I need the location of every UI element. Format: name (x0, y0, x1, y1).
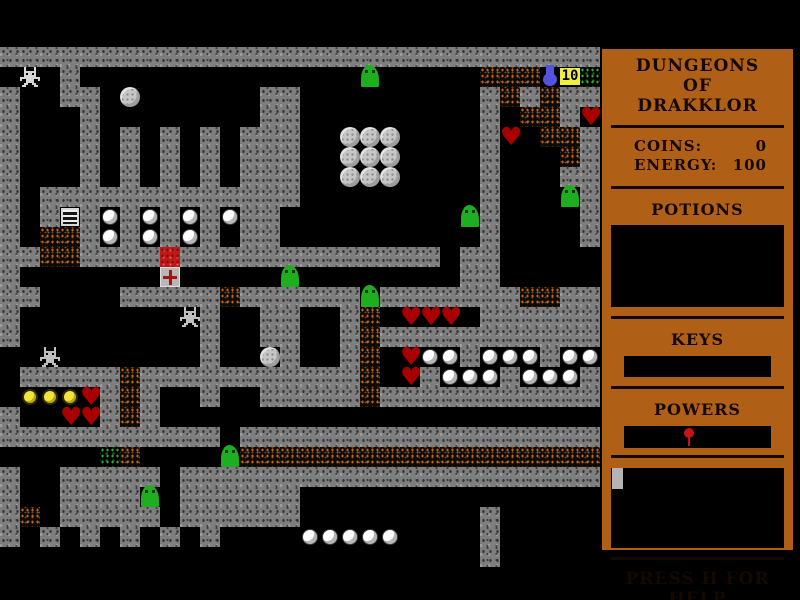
wall-tile (100, 47, 120, 67)
wall-tile (200, 207, 220, 227)
wall-tile (240, 507, 260, 527)
rubble-tile (460, 447, 480, 467)
wall-tile (180, 507, 200, 527)
slime-creature (461, 205, 479, 227)
boulder (260, 347, 280, 367)
keys-label: KEYS (602, 330, 793, 349)
wall-tile (100, 467, 120, 487)
rubble-tile (360, 327, 380, 347)
pearl (502, 349, 518, 365)
rubble-tile (500, 447, 520, 467)
wall-tile (80, 487, 100, 507)
wall-tile (580, 187, 600, 207)
rubble-tile (580, 447, 600, 467)
wall-tile (240, 487, 260, 507)
wall-tile (160, 367, 180, 387)
wall-tile (220, 487, 240, 507)
rubble-tile (540, 127, 560, 147)
wall-tile (400, 467, 420, 487)
wall-tile (20, 427, 40, 447)
wall-tile (160, 207, 180, 227)
divider (611, 455, 784, 458)
wall-tile (480, 127, 500, 147)
wall-tile (0, 307, 20, 327)
rubble-tile (320, 447, 340, 467)
divider (611, 125, 784, 128)
wall-tile (560, 107, 580, 127)
wall-tile (340, 47, 360, 67)
wall-tile (440, 327, 460, 347)
wall-tile (240, 167, 260, 187)
wall-tile (280, 347, 300, 367)
wall-tile (200, 307, 220, 327)
pearl (182, 209, 198, 225)
wall-tile (100, 387, 120, 407)
pearl (422, 349, 438, 365)
wall-tile (340, 467, 360, 487)
pearl (222, 209, 238, 225)
wall-tile (320, 467, 340, 487)
wall-tile (80, 187, 100, 207)
wall-tile (140, 467, 160, 487)
wall-tile (0, 247, 20, 267)
wall-tile (200, 387, 220, 407)
rubble-tile (40, 247, 60, 267)
wall-tile (420, 467, 440, 487)
wall-tile (80, 507, 100, 527)
wall-tile (540, 387, 560, 407)
wall-tile (180, 367, 200, 387)
game-title-line: DRAKKLOR (602, 96, 793, 116)
pearl (182, 229, 198, 245)
wall-tile (580, 387, 600, 407)
potions-label: POTIONS (602, 200, 793, 219)
wall-tile (260, 367, 280, 387)
wall-tile (260, 307, 280, 327)
help-text: PRESS H FOR HELP (602, 569, 793, 600)
wall-tile (0, 507, 20, 527)
wall-tile (20, 287, 40, 307)
wall-tile (60, 87, 80, 107)
heart: ♥ (60, 407, 80, 427)
wall-tile (260, 87, 280, 107)
wall-tile (260, 207, 280, 227)
wall-tile (260, 167, 280, 187)
wall-tile (140, 287, 160, 307)
statue-creature (40, 347, 60, 367)
wall-tile (300, 287, 320, 307)
gold-orb (22, 389, 38, 405)
wall-tile (100, 247, 120, 267)
wall-tile (500, 467, 520, 487)
wall-tile (400, 47, 420, 67)
wall-tile (0, 427, 20, 447)
wall-tile (60, 187, 80, 207)
wall-tile (480, 287, 500, 307)
wall-tile (220, 367, 240, 387)
wall-tile (420, 387, 440, 407)
wall-tile (480, 507, 500, 527)
wall-tile (580, 147, 600, 167)
wall-tile (540, 307, 560, 327)
wall-tile (240, 147, 260, 167)
wall-tile (260, 147, 280, 167)
rubble-tile (360, 347, 380, 367)
heart: ♥ (420, 307, 440, 327)
heart: ♥ (400, 367, 420, 387)
wall-tile (60, 467, 80, 487)
wall-tile (40, 47, 60, 67)
wall-tile (140, 407, 160, 427)
wall-tile (260, 487, 280, 507)
message-cursor-block (612, 468, 623, 489)
wall-tile (460, 247, 480, 267)
wall-tile (220, 467, 240, 487)
wall-tile (480, 547, 500, 567)
wall-tile (0, 527, 20, 547)
wall-tile (440, 47, 460, 67)
boulder (340, 147, 360, 167)
wall-tile (480, 167, 500, 187)
wall-tile (260, 247, 280, 267)
wall-tile (80, 467, 100, 487)
pearl (302, 529, 318, 545)
wall-tile (500, 307, 520, 327)
wall-tile (60, 507, 80, 527)
wall-tile (520, 307, 540, 327)
heart: ♥ (500, 127, 520, 147)
wall-tile (160, 187, 180, 207)
player-pixel-sprite (20, 67, 22, 69)
pearl (102, 229, 118, 245)
wall-tile (20, 247, 40, 267)
wall-tile (540, 47, 560, 67)
rubble-tile (280, 447, 300, 467)
rubble-tile (20, 507, 40, 527)
wall-tile (0, 227, 20, 247)
pearl (142, 209, 158, 225)
wall-tile (500, 327, 520, 347)
wall-tile (200, 367, 220, 387)
wall-tile (120, 247, 140, 267)
wall-tile (100, 407, 120, 427)
wall-tile (120, 287, 140, 307)
wall-tile (480, 207, 500, 227)
wall-tile (140, 47, 160, 67)
wall-tile (580, 307, 600, 327)
rubble-tile (540, 87, 560, 107)
wall-tile (80, 207, 100, 227)
wall-tile (380, 327, 400, 347)
wall-tile (380, 427, 400, 447)
wall-tile (460, 287, 480, 307)
rubble-tile (240, 447, 260, 467)
pearl (342, 529, 358, 545)
game-title: DUNGEONS OF DRAKKLOR (602, 49, 793, 116)
wall-tile (480, 87, 500, 107)
statue-pixel-sprite (180, 307, 182, 309)
statue-creature (180, 307, 200, 327)
wall-tile (180, 47, 200, 67)
wall-tile (200, 487, 220, 507)
energy-row: ENERGY: 100 (602, 156, 793, 175)
moss-tile (580, 67, 600, 87)
boulder (340, 127, 360, 147)
wall-tile (0, 87, 20, 107)
wall-tile (480, 187, 500, 207)
wall-tile (100, 187, 120, 207)
wall-tile (380, 287, 400, 307)
wall-tile (160, 47, 180, 67)
wall-tile (500, 287, 520, 307)
rubble-tile (520, 107, 540, 127)
wall-tile (460, 427, 480, 447)
wall-tile (220, 507, 240, 527)
wall-tile (520, 47, 540, 67)
crate (160, 247, 180, 267)
pearl (562, 349, 578, 365)
wall-tile (560, 87, 580, 107)
wall-tile (480, 267, 500, 287)
wall-tile (160, 167, 180, 187)
wall-tile (240, 127, 260, 147)
powers-label: POWERS (602, 400, 793, 419)
pearl (482, 349, 498, 365)
coins-row: COINS: 0 (602, 137, 793, 156)
wall-tile (300, 247, 320, 267)
wall-tile (580, 47, 600, 67)
wall-tile (140, 187, 160, 207)
wall-tile (40, 427, 60, 447)
rubble-tile (120, 367, 140, 387)
wall-tile (300, 47, 320, 67)
wall-tile (540, 327, 560, 347)
wall-tile (200, 507, 220, 527)
game-title-line: OF (602, 76, 793, 96)
wall-tile (0, 147, 20, 167)
wall-tile (280, 147, 300, 167)
wall-tile (580, 167, 600, 187)
wall-tile (80, 427, 100, 447)
wall-tile (220, 247, 240, 267)
wall-tile (220, 187, 240, 207)
slime-creature (561, 185, 579, 207)
wall-tile (140, 427, 160, 447)
wall-tile (0, 167, 20, 187)
wall-tile (120, 127, 140, 147)
pearl (482, 369, 498, 385)
wall-tile (120, 47, 140, 67)
coins-label: COINS: (634, 137, 702, 156)
energy-label: ENERGY: (634, 156, 717, 175)
wall-tile (420, 367, 440, 387)
wall-tile (260, 427, 280, 447)
wall-tile (400, 387, 420, 407)
wall-tile (140, 247, 160, 267)
game-screen: 10♥♥♥♥♥♥♥♥♥♥ DUNGEONS OF DRAKKLOR COINS:… (0, 0, 800, 600)
wall-tile (240, 207, 260, 227)
rubble-tile (220, 287, 240, 307)
rubble-tile (420, 447, 440, 467)
wall-tile (520, 467, 540, 487)
rubble-tile (360, 307, 380, 327)
rubble-tile (120, 447, 140, 467)
game-title-line: DUNGEONS (602, 56, 793, 76)
wall-tile (180, 187, 200, 207)
wall-tile (440, 387, 460, 407)
wall-tile (340, 287, 360, 307)
wall-tile (540, 347, 560, 367)
wall-tile (0, 107, 20, 127)
heart: ♥ (400, 307, 420, 327)
wall-tile (120, 467, 140, 487)
player-sprite (20, 67, 40, 87)
wall-tile (480, 387, 500, 407)
wall-tile (340, 387, 360, 407)
wall-tile (520, 387, 540, 407)
wall-tile (380, 467, 400, 487)
wall-tile (240, 187, 260, 207)
wall-tile (120, 527, 140, 547)
wall-tile (120, 487, 140, 507)
rubble-tile (500, 87, 520, 107)
wall-tile (140, 387, 160, 407)
wall-tile (200, 247, 220, 267)
wall-tile (280, 87, 300, 107)
wall-tile (460, 47, 480, 67)
wall-tile (0, 267, 20, 287)
wall-tile (140, 507, 160, 527)
wall-tile (320, 427, 340, 447)
rubble-tile (520, 447, 540, 467)
red-power-pin-icon (684, 428, 694, 438)
wall-tile (380, 47, 400, 67)
wall-tile (200, 187, 220, 207)
wall-tile (60, 67, 80, 87)
divider (611, 186, 784, 189)
wall-tile (520, 87, 540, 107)
statue-pixel-sprite (40, 347, 42, 349)
wall-tile (200, 227, 220, 247)
wall-tile (160, 127, 180, 147)
heart: ♥ (440, 307, 460, 327)
wall-tile (80, 247, 100, 267)
wall-tile (480, 147, 500, 167)
wall-tile (340, 307, 360, 327)
wall-tile (20, 47, 40, 67)
wall-tile (100, 507, 120, 527)
boulder (360, 127, 380, 147)
wall-tile (340, 327, 360, 347)
wall-tile (360, 427, 380, 447)
slime-creature (361, 285, 379, 307)
wall-tile (360, 247, 380, 267)
wall-tile (40, 367, 60, 387)
wall-tile (200, 147, 220, 167)
coins-value: 0 (756, 137, 767, 156)
wall-tile (120, 147, 140, 167)
wall-tile (480, 527, 500, 547)
wall-tile (320, 367, 340, 387)
wall-tile (460, 347, 480, 367)
wall-tile (300, 367, 320, 387)
wall-tile (480, 247, 500, 267)
wall-tile (320, 387, 340, 407)
wall-tile (40, 187, 60, 207)
wall-tile (260, 107, 280, 127)
wall-tile (460, 267, 480, 287)
message-box (611, 468, 784, 548)
wall-tile (80, 87, 100, 107)
wall-tile (460, 387, 480, 407)
slime-creature (281, 265, 299, 287)
wall-tile (520, 327, 540, 347)
wall-tile (260, 187, 280, 207)
wall-tile (280, 507, 300, 527)
rubble-tile (360, 447, 380, 467)
wall-tile (560, 287, 580, 307)
wall-tile (0, 287, 20, 307)
heart: ♥ (580, 107, 600, 127)
wall-tile (180, 427, 200, 447)
divider (611, 316, 784, 319)
wall-tile (240, 427, 260, 447)
wall-tile (480, 327, 500, 347)
count-badge: 10 (560, 68, 580, 85)
wall-tile (140, 367, 160, 387)
slime-creature (221, 445, 239, 467)
potions-inventory-box (611, 225, 784, 307)
wall-tile (220, 47, 240, 67)
wall-tile (420, 327, 440, 347)
wall-tile (80, 107, 100, 127)
medkit-crate (160, 267, 180, 287)
pearl (522, 369, 538, 385)
hud-sidebar: DUNGEONS OF DRAKKLOR COINS: 0 ENERGY: 10… (600, 47, 795, 552)
wall-tile (540, 467, 560, 487)
rubble-tile (560, 447, 580, 467)
rubble-tile (380, 447, 400, 467)
boulder (380, 147, 400, 167)
wall-tile (500, 367, 520, 387)
wall-tile (280, 247, 300, 267)
wall-tile (560, 467, 580, 487)
wall-tile (280, 427, 300, 447)
stats-panel: COINS: 0 ENERGY: 100 (602, 137, 793, 175)
rubble-tile (60, 247, 80, 267)
game-map[interactable]: 10♥♥♥♥♥♥♥♥♥♥ (0, 47, 600, 567)
wall-tile (0, 127, 20, 147)
wall-tile (300, 427, 320, 447)
rubble-tile (260, 447, 280, 467)
wall-tile (480, 307, 500, 327)
wall-tile (580, 327, 600, 347)
wall-tile (560, 327, 580, 347)
rubble-tile (560, 127, 580, 147)
wall-tile (580, 367, 600, 387)
wall-tile (200, 167, 220, 187)
wall-tile (200, 47, 220, 67)
wall-tile (120, 207, 140, 227)
wall-tile (100, 487, 120, 507)
wall-tile (180, 287, 200, 307)
wall-tile (200, 467, 220, 487)
moss-tile (100, 447, 120, 467)
wall-tile (200, 127, 220, 147)
wall-tile (240, 47, 260, 67)
wall-tile (260, 467, 280, 487)
wall-tile (560, 387, 580, 407)
